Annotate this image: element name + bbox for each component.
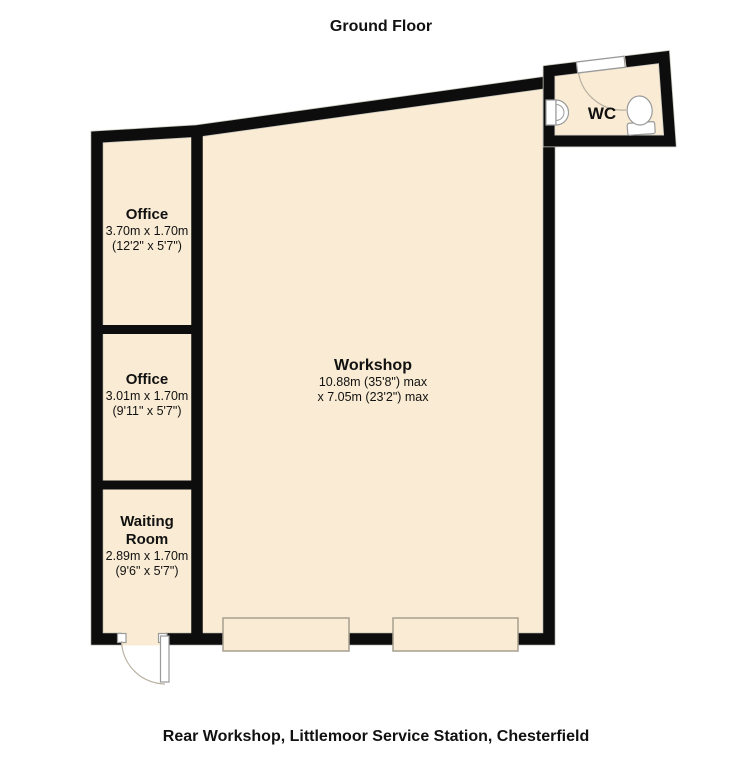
entrance-door-arc	[122, 641, 166, 684]
room-label-office-middle: Office 3.01m x 1.70m (9'11" x 5'7")	[106, 371, 189, 419]
room-name: Workshop	[317, 356, 428, 375]
entrance-door-icon	[118, 633, 170, 685]
room-dims-metric: 3.70m x 1.70m	[106, 224, 189, 239]
room-label-wc: WC	[588, 104, 616, 124]
roller-door-right-icon	[393, 618, 518, 651]
sink-icon	[546, 100, 569, 125]
room-dims-imperial: (12'2" x 5'7")	[106, 239, 189, 254]
plan-caption: Rear Workshop, Littlemoor Service Statio…	[163, 727, 589, 747]
room-name: Office	[106, 371, 189, 389]
entrance-door-leaf	[161, 636, 170, 682]
room-name-wc: WC	[588, 104, 616, 124]
room-label-workshop: Workshop 10.88m (35'8") max x 7.05m (23'…	[317, 356, 428, 405]
room-label-waiting-room: Waiting Room 2.89m x 1.70m (9'6" x 5'7")	[103, 513, 191, 579]
room-name: Office	[106, 206, 189, 224]
room-dims-metric: 2.89m x 1.70m	[103, 549, 191, 564]
room-dims-line1: 10.88m (35'8") max	[317, 375, 428, 390]
room-dims-imperial: (9'11" x 5'7")	[106, 404, 189, 419]
sink-base	[546, 100, 556, 125]
room-dims-metric: 3.01m x 1.70m	[106, 389, 189, 404]
page-title: Ground Floor	[330, 17, 432, 37]
room-dims-imperial: (9'6" x 5'7")	[103, 564, 191, 579]
floor-plan-page: Ground Floor WC Office 3.70m x 1.70m (12…	[0, 0, 744, 766]
room-dims-line2: x 7.05m (23'2") max	[317, 390, 428, 405]
roller-door-left-icon	[223, 618, 349, 651]
room-name: Waiting Room	[103, 513, 191, 549]
room-label-office-top: Office 3.70m x 1.70m (12'2" x 5'7")	[106, 206, 189, 254]
